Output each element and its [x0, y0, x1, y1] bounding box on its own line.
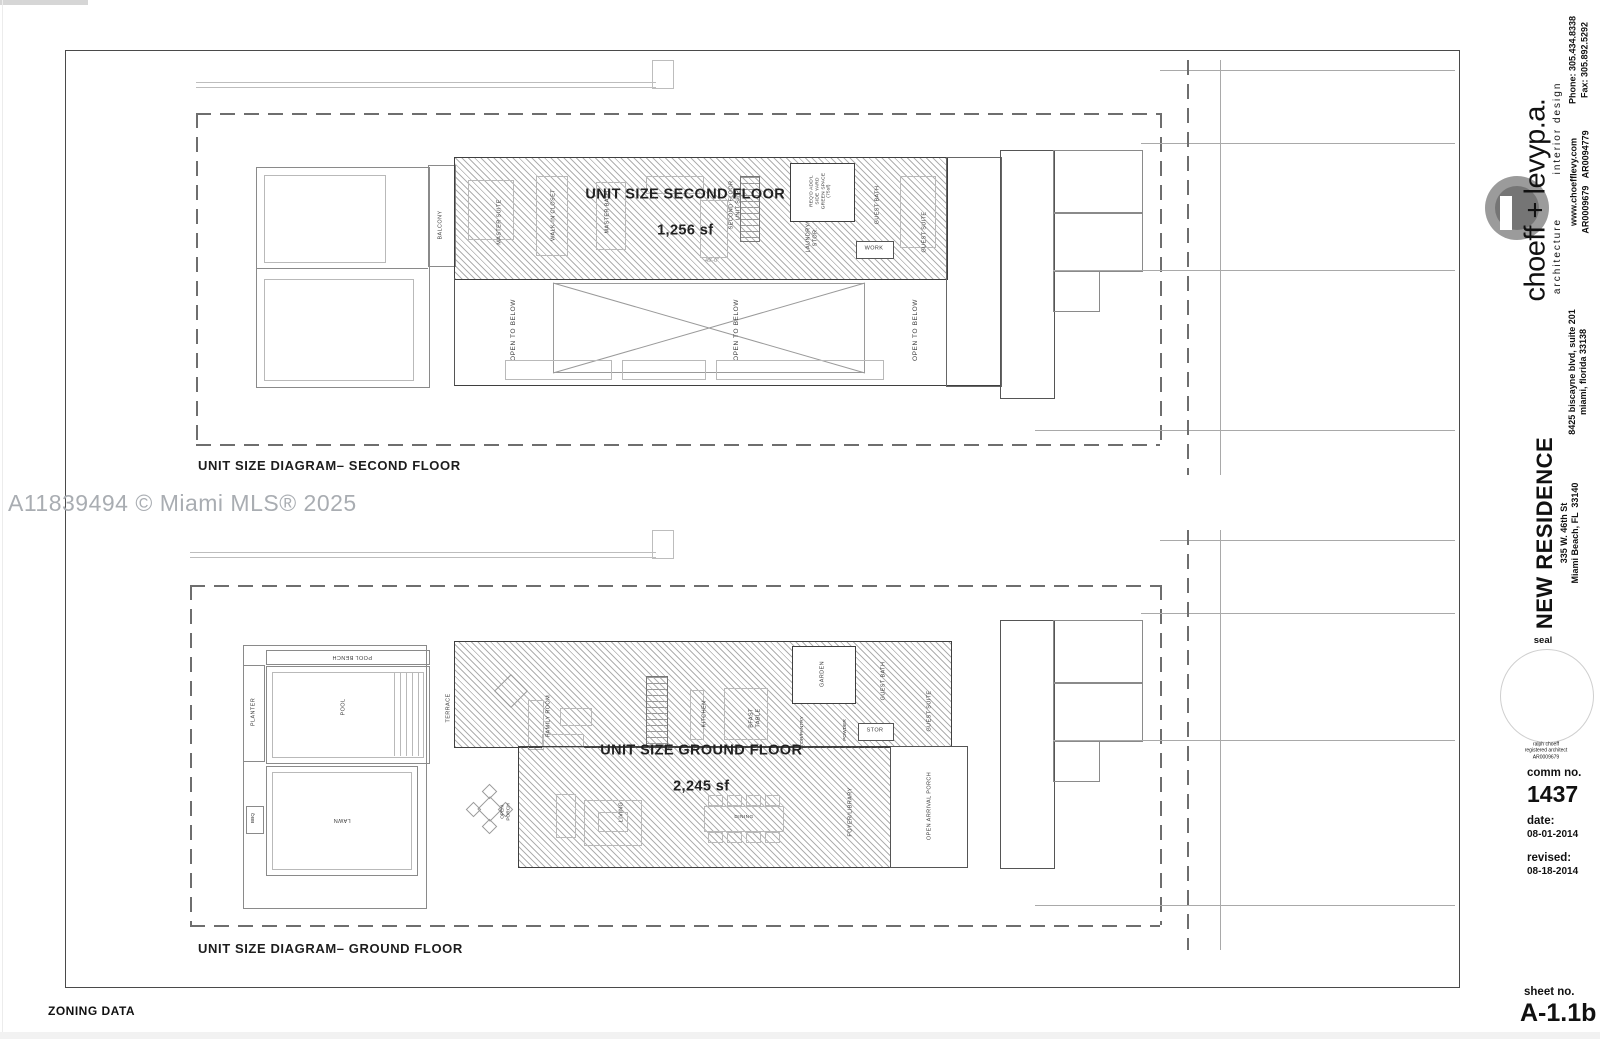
- ground-floor-caption: UNIT SIZE DIAGRAM– GROUND FLOOR: [198, 941, 463, 957]
- sheet-value: A-1.1b: [1520, 998, 1596, 1029]
- site-line: [1053, 740, 1455, 741]
- room-label-living: LIVING: [619, 802, 626, 822]
- room-label-planter: PLANTER: [251, 698, 258, 726]
- site-notch: [652, 530, 674, 559]
- open-to-below-label: OPEN TO BELOW: [912, 299, 920, 361]
- firm-logo-slot: [1500, 196, 1512, 230]
- site-line: [1220, 60, 1221, 475]
- seal-circle: [1500, 649, 1594, 743]
- site-line: [196, 87, 656, 88]
- property-line: [190, 925, 1160, 927]
- property-line: [1187, 530, 1189, 950]
- comm-value: 1437: [1527, 780, 1578, 809]
- adjacent-structure: [1053, 740, 1100, 782]
- dining-chair: [765, 795, 780, 806]
- room-label-pool: POOL: [341, 699, 348, 716]
- dining-chair: [708, 832, 723, 843]
- furniture: [468, 180, 514, 240]
- dining-chair: [765, 832, 780, 843]
- room-label-foyer: FOYER/LIBRARY: [848, 787, 855, 836]
- second-floor-caption: UNIT SIZE DIAGRAM– SECOND FLOOR: [198, 458, 461, 474]
- room-label-pool-bench: POOL BENCH: [332, 654, 372, 660]
- firm-website: www.choefflevy.com: [1569, 138, 1580, 226]
- property-line: [1187, 60, 1189, 475]
- date-label: date:: [1527, 814, 1554, 828]
- firm-tagline-interior: interior design: [1552, 82, 1564, 175]
- date-value: 08-01-2014: [1527, 829, 1578, 842]
- room-label-guest-suite-gf: GUEST SUITE: [927, 691, 934, 732]
- unit-size-title: UNIT SIZE SECOND FLOOR 1,256 sf: [559, 168, 785, 259]
- room-label-open-porch: OPEN PORCH: [500, 803, 512, 820]
- roof-deck: [946, 157, 1002, 387]
- seal-label: seal: [1534, 635, 1553, 647]
- site-line: [196, 82, 656, 83]
- seal-note: ralph choeff registered architect AR0009…: [1525, 742, 1568, 761]
- pool-steps: [394, 672, 422, 756]
- room-label-bbq: BBQ: [251, 813, 257, 823]
- unit-size-value: 1,256 sf: [657, 223, 713, 239]
- furniture: [556, 794, 576, 838]
- room-label-terrace: TERRACE: [446, 693, 453, 722]
- property-line: [1160, 585, 1162, 925]
- room-label-laundry: LAUNDRY/ STOR.: [805, 222, 818, 253]
- site-line: [190, 552, 656, 553]
- dining-chair: [708, 795, 723, 806]
- room-label-guest-suite: GUEST SUITE: [922, 212, 929, 253]
- project-address: 335 W. 46th St Miami Beach, FL 33140: [1559, 483, 1581, 584]
- scan-edge-left: [2, 0, 3, 1039]
- adjacent-structure: [1053, 150, 1143, 214]
- adjacent-structure: [1053, 620, 1143, 684]
- furniture: [900, 176, 936, 248]
- revised-label: revised:: [1527, 851, 1571, 865]
- planter-ledge: [622, 360, 706, 380]
- dining-chair: [746, 832, 761, 843]
- adjacent-structure: [1000, 620, 1055, 869]
- site-line: [1160, 540, 1455, 541]
- scan-edge-bar: [0, 0, 88, 5]
- room-label-guest-bath: GUEST BATH: [875, 186, 882, 225]
- unit-size-name-gf: UNIT SIZE GROUND FLOOR: [600, 743, 802, 759]
- site-line: [1035, 430, 1455, 431]
- site-line: [1035, 905, 1455, 906]
- roof-inset: [264, 175, 386, 263]
- firm-name: choeff + levyp.a.: [1519, 99, 1554, 302]
- property-line: [196, 113, 1160, 115]
- room-label-arrival-porch: OPEN ARRIVAL PORCH: [927, 772, 934, 840]
- site-line: [1053, 270, 1455, 271]
- adjacent-structure: [1053, 270, 1100, 312]
- room-label-walkin-closet: WALK-IN CLOSET: [551, 189, 558, 241]
- room-label-powder: POWDER: [843, 719, 849, 741]
- open-to-below-label: OPEN TO BELOW: [733, 299, 741, 361]
- firm-address: 8425 biscayne blvd, suite 201 miami, flo…: [1567, 309, 1589, 435]
- planter-ledge: [716, 360, 884, 380]
- dining-chair: [727, 832, 742, 843]
- planter-ledge: [505, 360, 612, 380]
- site-line: [190, 557, 656, 558]
- project-name: NEW RESIDENCE: [1532, 437, 1558, 629]
- green-space-note: REQ'D ADD'L SIDE YARD GREEN SPACE (75sf): [810, 173, 833, 210]
- site-line: [1160, 70, 1455, 71]
- unit-size-value-gf: 2,245 sf: [673, 779, 729, 795]
- room-label-stor: STOR: [867, 728, 884, 735]
- room-label-dining: DINING: [734, 815, 753, 821]
- mls-watermark: A11839494 © Miami MLS® 2025: [8, 490, 357, 517]
- roof-inset: [264, 279, 414, 381]
- room-label-balcony: BALCONY: [438, 210, 445, 239]
- dining-chair: [746, 795, 761, 806]
- zoning-data-label: ZONING DATA: [48, 1004, 135, 1019]
- adjacent-structure: [1000, 150, 1055, 399]
- drawing-sheet: A11839494 © Miami MLS® 2025 BALCONY REQ'…: [0, 0, 1600, 1039]
- scan-edge-bottom: [0, 1032, 1600, 1039]
- property-line: [190, 585, 1160, 587]
- firm-tagline-architecture: architecture: [1552, 218, 1564, 294]
- room-label-lawn: LAWN: [333, 817, 350, 823]
- property-line: [1160, 113, 1162, 444]
- dimension-text: 49'-0": [705, 258, 719, 265]
- room-label-master-suite: MASTER SUITE: [497, 199, 504, 244]
- site-notch: [652, 60, 674, 89]
- roof-divider: [256, 268, 428, 269]
- open-to-below-label: OPEN TO BELOW: [510, 299, 518, 361]
- room-label-guest-bath-gf: GUEST BATH: [881, 662, 888, 701]
- firm-phone: Phone: 305.434.8338: [1568, 16, 1579, 104]
- firm-fax: Fax: 305.892.5292: [1580, 22, 1591, 98]
- revised-value: 08-18-2014: [1527, 866, 1578, 879]
- dining-chair: [727, 795, 742, 806]
- room-label-family-room: FAMILY ROOM: [546, 695, 553, 737]
- room-label-work: WORK: [865, 246, 884, 253]
- property-line: [196, 444, 1160, 446]
- adjacent-structure: [1053, 212, 1143, 272]
- unit-size-name: UNIT SIZE SECOND FLOOR: [585, 187, 785, 203]
- property-line: [190, 585, 192, 925]
- firm-licenses: AR0009679 AR0094779: [1581, 130, 1592, 233]
- site-line: [1220, 530, 1221, 950]
- adjacent-structure: [1053, 682, 1143, 742]
- comm-label: comm no.: [1527, 766, 1581, 780]
- room-label-garden: GARDEN: [820, 661, 827, 687]
- property-line: [196, 113, 198, 444]
